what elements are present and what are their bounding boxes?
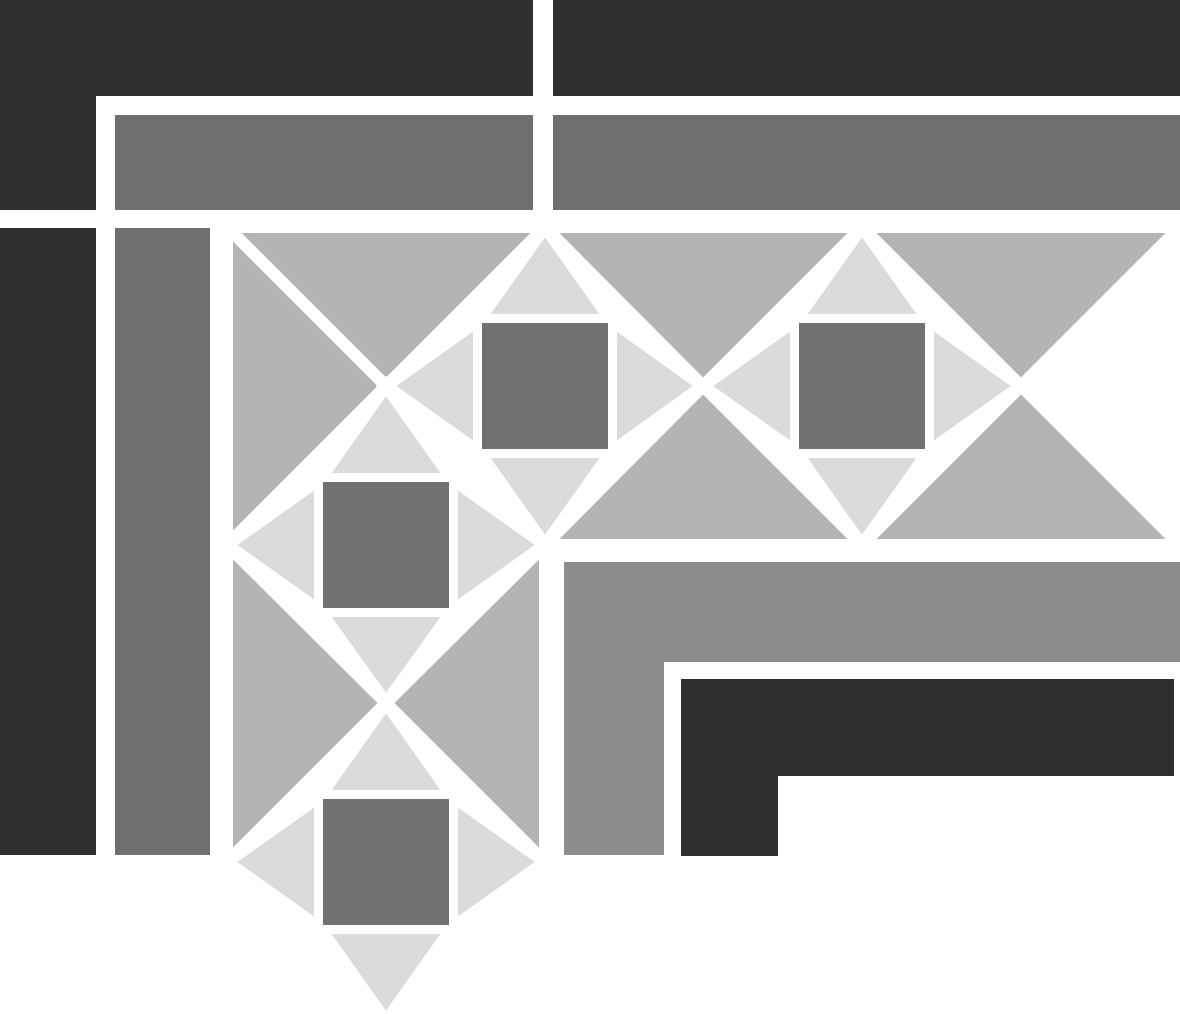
frame-left-dark-column <box>0 228 96 855</box>
frame-left-gray-column <box>115 228 210 855</box>
pattern-canvas <box>0 0 1180 1014</box>
diamond-h2-square <box>799 323 925 449</box>
diamond-h1-square <box>482 323 608 449</box>
grayscale-quilt-border-corner-pattern <box>0 0 1180 1014</box>
frame-top-right-dark-bar <box>553 0 1180 96</box>
frame-top-gray-bar-right <box>553 115 1180 210</box>
diamond-v1-square <box>323 482 449 608</box>
frame-top-gray-bar-left <box>115 115 533 210</box>
diamond-v2-square <box>323 799 449 925</box>
